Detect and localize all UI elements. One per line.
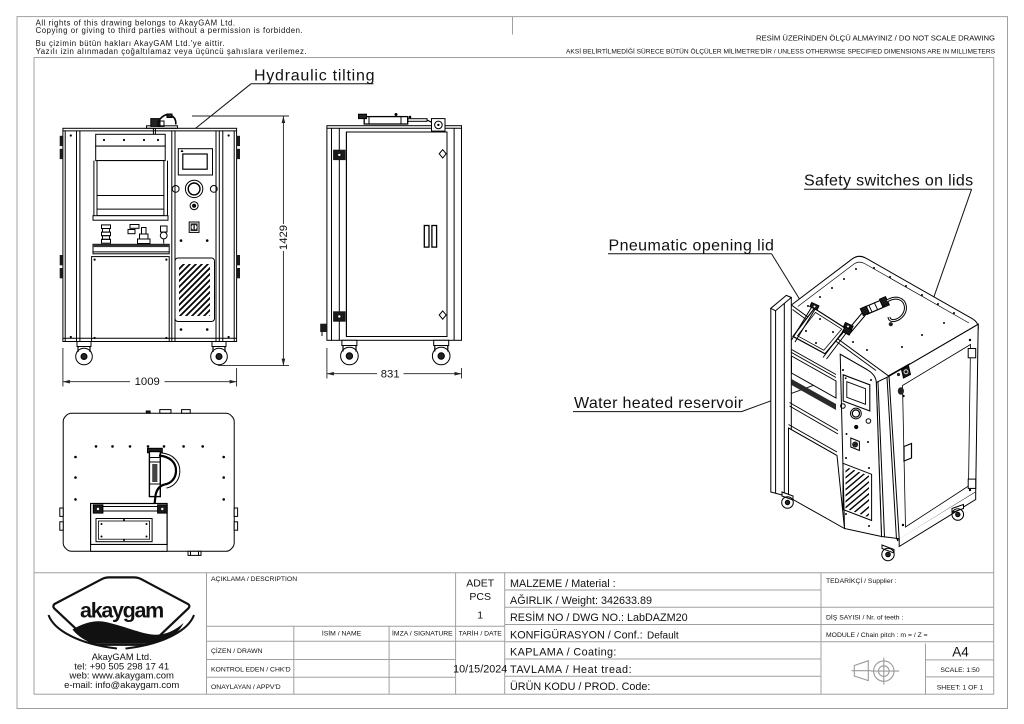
svg-text:İSİM / NAME: İSİM / NAME xyxy=(322,629,362,638)
svg-text:MALZEME / Material :: MALZEME / Material : xyxy=(510,578,616,590)
svg-text:AĞIRLIK / Weight: 342633.89: AĞIRLIK / Weight: 342633.89 xyxy=(510,594,652,607)
svg-text:1429: 1429 xyxy=(278,225,290,250)
svg-text:Yazılı izin alınmadan çoğaltıl: Yazılı izin alınmadan çoğaltılamaz veya … xyxy=(36,47,308,56)
svg-text:Pneumatic opening lid: Pneumatic opening lid xyxy=(609,237,775,254)
svg-text:İMZA / SIGNATURE: İMZA / SIGNATURE xyxy=(392,629,453,638)
svg-text:Hydraulic tilting: Hydraulic tilting xyxy=(254,68,375,85)
svg-text:RESİM NO / DWG NO.: LabDAZM20: RESİM NO / DWG NO.: LabDAZM20 xyxy=(510,611,688,624)
svg-text:PCS: PCS xyxy=(469,591,491,603)
svg-text:Copying or giving to third par: Copying or giving to third parties witho… xyxy=(36,26,304,35)
svg-text:1: 1 xyxy=(477,610,483,622)
svg-text:ONAYLAYAN / APPV'D: ONAYLAYAN / APPV'D xyxy=(211,684,281,691)
svg-text:1009: 1009 xyxy=(135,376,160,388)
svg-text:RESİM ÜZERİNDEN ÖLÇÜ ALMAYINIZ: RESİM ÜZERİNDEN ÖLÇÜ ALMAYINIZ / DO NOT … xyxy=(756,34,995,43)
svg-text:Default: Default xyxy=(647,630,679,641)
svg-text:Safety switches on lids: Safety switches on lids xyxy=(804,173,973,190)
svg-text:A4: A4 xyxy=(952,645,969,660)
svg-text:KONFİGÜRASYON / Conf.:: KONFİGÜRASYON / Conf.: xyxy=(510,628,643,641)
svg-text:KAPLAMA / Coating:: KAPLAMA / Coating: xyxy=(510,647,617,659)
svg-text:TAVLAMA / Heat tread:: TAVLAMA / Heat tread: xyxy=(510,664,632,676)
svg-text:ÜRÜN KODU / PROD. Code:: ÜRÜN KODU / PROD. Code: xyxy=(510,681,650,693)
svg-text:AÇIKLAMA / DESCRIPTION: AÇIKLAMA / DESCRIPTION xyxy=(211,576,297,583)
svg-text:TARİH / DATE: TARİH / DATE xyxy=(459,629,503,638)
svg-text:SCALE: 1:50: SCALE: 1:50 xyxy=(940,667,980,674)
svg-text:TEDARİKÇİ / Supplier :: TEDARİKÇİ / Supplier : xyxy=(826,576,897,585)
svg-text:MODULE / Chain pitch : m =: MODULE / Chain pitch : m = / Z = xyxy=(826,632,928,639)
svg-text:e-mail: info@akaygam.com: e-mail: info@akaygam.com xyxy=(64,680,179,691)
svg-text:831: 831 xyxy=(381,368,400,380)
svg-text:AKSİ BELİRTİLMEDİĞİ SÜRECE BÜT: AKSİ BELİRTİLMEDİĞİ SÜRECE BÜTÜN ÖLÇÜLER… xyxy=(566,47,996,56)
svg-text:Water heated reservoir: Water heated reservoir xyxy=(574,395,744,412)
svg-text:KONTROL EDEN / CHK'D: KONTROL EDEN / CHK'D xyxy=(211,666,291,673)
svg-text:akaygam: akaygam xyxy=(80,599,163,623)
svg-text:SHEET: 1 OF 1: SHEET: 1 OF 1 xyxy=(937,684,984,691)
svg-text:ÇİZEN / DRAWN: ÇİZEN / DRAWN xyxy=(211,646,263,655)
svg-text:10/15/2024: 10/15/2024 xyxy=(453,664,507,676)
svg-text:DİŞ SAYISI / Nr. of teeth :: DİŞ SAYISI / Nr. of teeth : xyxy=(826,613,903,622)
svg-text:ADET: ADET xyxy=(466,578,495,590)
